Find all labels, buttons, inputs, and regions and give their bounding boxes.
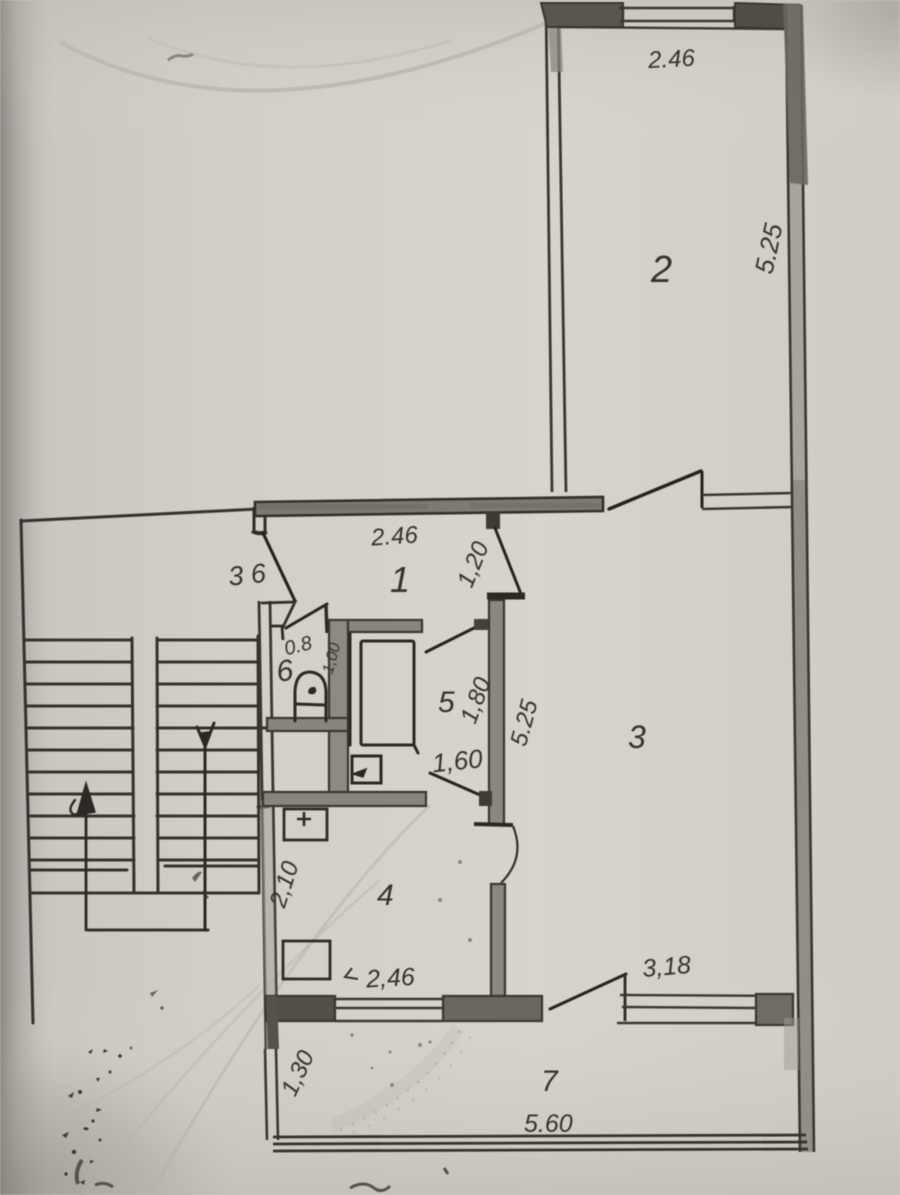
svg-text:5.60: 5.60: [524, 1110, 573, 1138]
svg-text:7: 7: [541, 1065, 559, 1098]
svg-text:1,60: 1,60: [431, 743, 485, 778]
svg-text:2.46: 2.46: [369, 521, 419, 551]
svg-text:3: 3: [628, 719, 646, 755]
svg-text:1: 1: [390, 559, 410, 600]
svg-text:2: 2: [650, 249, 672, 291]
svg-text:4: 4: [377, 879, 394, 912]
svg-text:5: 5: [438, 686, 455, 719]
svg-text:3 6: 3 6: [227, 558, 268, 592]
svg-text:2,46: 2,46: [364, 963, 415, 994]
svg-text:3,18: 3,18: [641, 951, 692, 983]
svg-text:2.46: 2.46: [646, 45, 696, 74]
